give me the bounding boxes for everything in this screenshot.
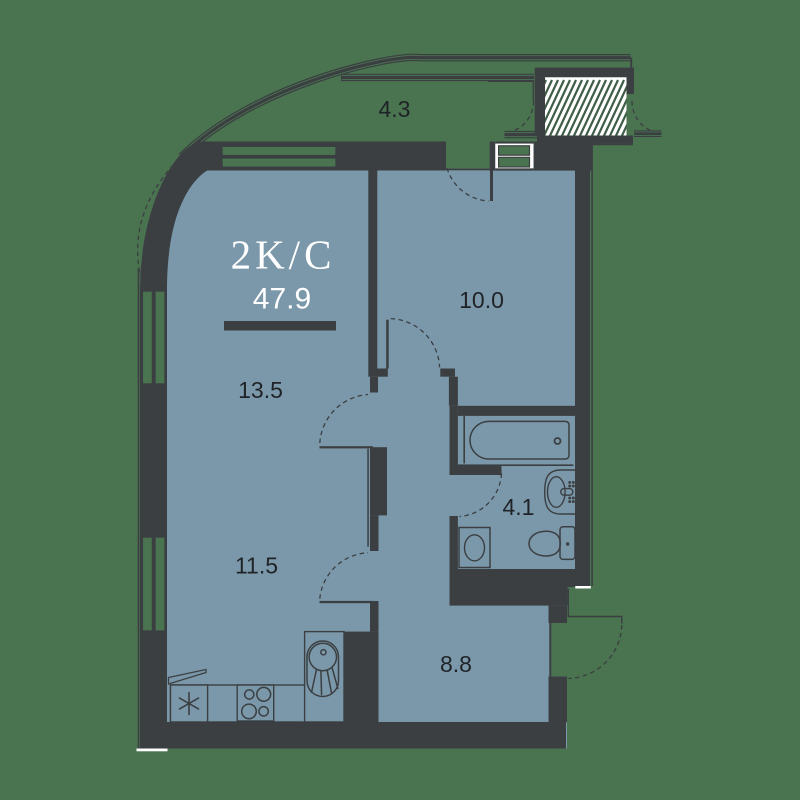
- svg-text:47.9: 47.9: [253, 282, 311, 315]
- svg-text:13.5: 13.5: [238, 377, 283, 403]
- svg-text:2K/C: 2K/C: [231, 232, 336, 278]
- svg-text:4.3: 4.3: [379, 96, 411, 122]
- svg-text:4.1: 4.1: [503, 494, 535, 520]
- svg-text:8.8: 8.8: [440, 651, 472, 677]
- svg-text:10.0: 10.0: [459, 287, 504, 313]
- svg-text:11.5: 11.5: [235, 553, 278, 579]
